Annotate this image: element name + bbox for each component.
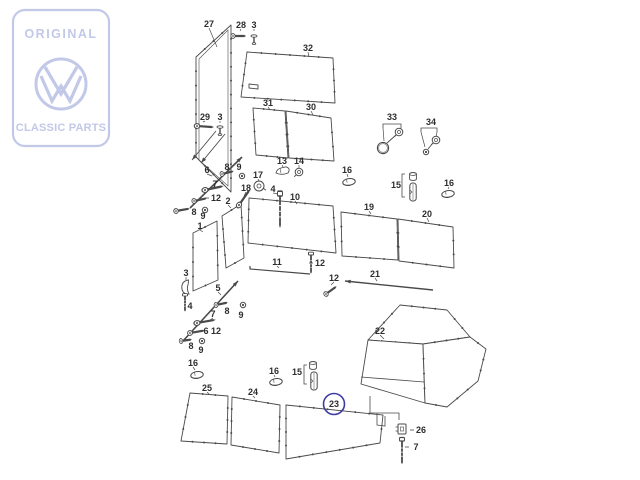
fastener-dot (242, 85, 244, 87)
part-callout-15[interactable]: 15 (292, 367, 302, 377)
fastener-dot (230, 432, 232, 434)
part-callout-13[interactable]: 13 (277, 156, 287, 167)
fastener-dot (230, 108, 232, 110)
fastener-dot (227, 419, 229, 421)
panel-24 (231, 397, 280, 453)
fastener-dot (195, 113, 197, 115)
part-callout-3[interactable]: 3 (251, 20, 256, 31)
part-number-label[interactable]: 16 (188, 358, 198, 368)
fastener-dot (279, 416, 281, 418)
clip-icon (342, 178, 355, 186)
part-callout-9[interactable]: 9 (236, 162, 241, 172)
fastener-dot (439, 265, 441, 267)
part-number-label[interactable]: 12 (211, 193, 221, 203)
clip-icon (190, 371, 203, 379)
fastener-dot (195, 142, 197, 144)
part-number-label[interactable]: 7 (210, 309, 215, 319)
fastener-dot (217, 264, 219, 266)
fastener-dot (266, 450, 268, 452)
fastener-dot (477, 342, 479, 344)
fastener-dot (308, 114, 310, 116)
fastener-dot (480, 369, 482, 371)
fastener-dot (262, 244, 264, 246)
fastener-dot (434, 341, 436, 343)
part-callout-32[interactable]: 32 (303, 43, 313, 57)
part-number-label[interactable]: 24 (248, 387, 258, 397)
part-number-label[interactable]: 15 (292, 367, 302, 377)
fastener-dot (352, 447, 354, 449)
panel-32-slot (249, 84, 258, 89)
part-number-label[interactable]: 4 (270, 184, 275, 194)
fastener-dot (456, 397, 458, 399)
part-number-label[interactable]: 6 (204, 165, 209, 175)
fastener-dot (276, 200, 278, 202)
part-number-label[interactable]: 1 (197, 221, 202, 231)
part-callout-14[interactable]: 14 (294, 156, 304, 168)
fastener-dot (291, 247, 293, 249)
part-number-label[interactable]: 3 (217, 112, 222, 122)
part-number-label[interactable]: 3 (251, 20, 256, 30)
bracket-33 (383, 124, 401, 128)
panel-30 (286, 111, 334, 161)
fastener-dot (457, 338, 459, 340)
fastener-dot (245, 62, 247, 64)
fastener-dot (185, 416, 187, 418)
fastener-dot (230, 66, 232, 68)
fastener-dot (234, 262, 236, 264)
fastener-dot (254, 448, 256, 450)
fastener-dot (287, 145, 289, 147)
fastener-dot (242, 446, 244, 448)
bracket-33-left-leader (383, 128, 384, 141)
part-number-label[interactable]: 19 (364, 202, 374, 212)
part-number-label[interactable]: 12 (315, 258, 325, 268)
vw-classic-parts-logo: ORIGINAL CLASSIC PARTS (13, 10, 109, 146)
hook-icon (182, 280, 189, 294)
fastener-dot (287, 134, 289, 136)
part-number-label[interactable]: 7 (413, 442, 418, 452)
fastener-dot (217, 250, 219, 252)
part-number-label[interactable]: 27 (204, 19, 214, 29)
part-number-label[interactable]: 26 (416, 425, 426, 435)
fastener-dot (318, 56, 320, 58)
fastener-dot (195, 99, 197, 101)
fastener-dot (260, 52, 262, 54)
fastener-dot (381, 428, 383, 430)
part-number-label[interactable]: 32 (303, 43, 313, 53)
fastener-dot (318, 204, 320, 206)
part-callout-2[interactable]: 2 (225, 196, 231, 208)
part-callout-29[interactable]: 29 (200, 112, 210, 122)
part-number-label[interactable]: 12 (211, 326, 221, 336)
part-number-label[interactable]: 31 (263, 98, 273, 108)
fastener-dot (340, 226, 342, 228)
part-number-label[interactable]: 10 (290, 192, 300, 202)
part-number-label[interactable]: 22 (375, 326, 385, 336)
part-number-label[interactable]: 3 (183, 268, 188, 278)
fastener-dot (230, 177, 232, 179)
fastener-dot (333, 68, 335, 70)
grommet2-icon (394, 128, 403, 137)
fastener-dot (423, 358, 425, 360)
fastener-dot (354, 411, 356, 413)
part-callout-9[interactable]: 9 (198, 345, 203, 355)
part-callout-8[interactable]: 8 (191, 207, 196, 217)
fastener-dot (289, 54, 291, 56)
screw-icon (231, 34, 246, 39)
strip-part-21 (345, 281, 433, 290)
fastener-dot (195, 85, 197, 87)
screw-icon (323, 284, 338, 297)
part-callout-9[interactable]: 9 (200, 211, 205, 221)
rod-part-11 (250, 266, 310, 274)
fastener-dot (230, 149, 232, 151)
part-callout-21[interactable]: 21 (370, 269, 380, 281)
fastener-dot (222, 228, 224, 230)
fastener-dot (398, 246, 400, 248)
fastener-dot (231, 420, 233, 422)
fastener-dot (355, 256, 357, 258)
screw-icon (191, 196, 207, 204)
bracket-15-bottom (304, 365, 307, 384)
fastener-dot (254, 131, 256, 133)
bracket-34-left-leader (421, 132, 425, 147)
part-number-label[interactable]: 4 (187, 301, 192, 311)
fastener-dot (313, 407, 315, 409)
fastener-dot (255, 400, 257, 402)
part-number-label[interactable]: 18 (241, 183, 251, 193)
fastener-dot (423, 307, 425, 309)
fastener-dot (285, 418, 287, 420)
part-number-label[interactable]: 29 (200, 112, 210, 122)
part-number-label[interactable]: 9 (238, 310, 243, 320)
panel-1 (193, 221, 218, 291)
fastener-dot (242, 230, 244, 232)
part-callout-20[interactable]: 20 (422, 209, 432, 222)
fastener-dot (230, 163, 232, 165)
fastener-dot (266, 155, 268, 157)
part-number-label[interactable]: 9 (236, 162, 241, 172)
part-callout-30[interactable]: 30 (306, 102, 316, 115)
capnut-icon (410, 173, 417, 181)
part-callout-6[interactable]: 6 (203, 326, 208, 336)
panel-25 (181, 393, 228, 444)
fastener-dot (424, 387, 426, 389)
fastener-dot (202, 393, 204, 395)
part-callout-25[interactable]: 25 (202, 383, 212, 394)
fastener-dot (368, 215, 370, 217)
ring-icon (377, 142, 388, 153)
fastener-dot (223, 241, 225, 243)
part-callout-17[interactable]: 17 (253, 170, 263, 181)
grommet2-icon (294, 168, 303, 177)
fastener-dot (192, 261, 194, 263)
part-callout-8[interactable]: 8 (224, 162, 229, 172)
fastener-dot (339, 449, 341, 451)
panel-20 (398, 219, 454, 268)
part-callout-3[interactable]: 3 (217, 112, 222, 123)
panel-10 (248, 198, 336, 253)
fastener-dot (334, 91, 336, 93)
part-callout-5[interactable]: 5 (215, 283, 221, 295)
fastener-dot (341, 240, 343, 242)
fastener-dot (215, 442, 217, 444)
bracket-34 (421, 128, 437, 132)
part-number-label[interactable]: 7 (212, 179, 217, 189)
clip-icon (269, 378, 282, 386)
exploded-parts-diagram: ORIGINAL CLASSIC PARTS 27283323130333429… (0, 0, 640, 480)
part-number-label[interactable]: 2 (225, 196, 230, 206)
fastener-dot (230, 94, 232, 96)
fastener-dot (296, 112, 298, 114)
part-callout-24[interactable]: 24 (248, 387, 258, 398)
fastener-dot (382, 216, 384, 218)
fastener-dot (320, 250, 322, 252)
fastener-dot (263, 108, 265, 110)
fastener-dot (226, 431, 228, 433)
fastener-dot (322, 159, 324, 161)
fastener-dot (411, 305, 413, 307)
part-number-label[interactable]: 11 (272, 257, 282, 267)
part-callout-3[interactable]: 3 (183, 268, 188, 280)
fastener-dot (203, 442, 205, 444)
nut-icon (199, 338, 204, 343)
part-number-label[interactable]: 13 (277, 156, 287, 166)
fastener-dot (278, 440, 280, 442)
fastener-dot (306, 249, 308, 251)
fastener-dot (411, 220, 413, 222)
fastener-dot (461, 327, 463, 329)
flagclip-icon (276, 167, 289, 175)
part-callout-12[interactable]: 12 (205, 193, 221, 203)
fastener-dot (276, 245, 278, 247)
fastener-dot (354, 213, 356, 215)
fastener-dot (482, 359, 484, 361)
fastener-dot (192, 276, 194, 278)
panel-19 (341, 212, 398, 260)
part-number-label[interactable]: 30 (306, 102, 316, 112)
part-callout-8[interactable]: 8 (224, 306, 229, 316)
logo-top-text: ORIGINAL (24, 27, 97, 41)
fastener-dot (383, 258, 385, 260)
fastener-dot (366, 444, 368, 446)
part-callout-4[interactable]: 4 (187, 301, 192, 311)
part-callout-9[interactable]: 9 (238, 310, 243, 320)
fastener-dot (397, 232, 399, 234)
part-callout-7[interactable]: 7 (405, 442, 419, 452)
fastener-dot (275, 53, 277, 55)
part-callout-26[interactable]: 26 (410, 425, 426, 435)
grommet-icon (254, 181, 266, 191)
part-number-label[interactable]: 25 (202, 383, 212, 393)
screwv-icon (400, 437, 405, 464)
fastener-dot (230, 52, 232, 54)
part-number-label[interactable]: 9 (198, 345, 203, 355)
part-callout-19[interactable]: 19 (364, 202, 374, 214)
longclip-icon (311, 372, 317, 390)
fastener-dot (446, 340, 448, 342)
nut-icon (240, 302, 245, 307)
part-callout-15[interactable]: 15 (391, 180, 401, 190)
fastener-dot (383, 322, 385, 324)
fastener-dot (334, 229, 336, 231)
part-callout-4[interactable]: 4 (270, 184, 278, 194)
fastener-dot (230, 121, 232, 123)
bracket-15-right (402, 174, 405, 197)
part-number-label[interactable]: 6 (203, 326, 208, 336)
fastener-dot (242, 244, 244, 246)
fastener-dot (333, 80, 335, 82)
fastener-dot (267, 402, 269, 404)
part-number-label[interactable]: 8 (191, 207, 196, 217)
part-callout-27[interactable]: 27 (204, 19, 217, 47)
part-number-label[interactable]: 8 (224, 162, 229, 172)
fastener-dot (248, 220, 250, 222)
fastener-dot (227, 407, 229, 409)
part-number-label[interactable]: 34 (426, 117, 436, 127)
pin-icon (251, 35, 257, 45)
fastener-dot (231, 209, 233, 211)
part-number-label[interactable]: 17 (253, 170, 263, 180)
part-callout-8[interactable]: 8 (188, 341, 193, 351)
part-callout-7[interactable]: 7 (212, 179, 217, 189)
fastener-dot (312, 453, 314, 455)
squarenut-icon (396, 424, 407, 434)
grommet2-icon (431, 136, 440, 145)
fastener-dot (435, 404, 437, 406)
fastener-dot (299, 405, 301, 407)
fastener-dot (423, 373, 425, 375)
part-callout-16[interactable]: 16 (342, 165, 352, 177)
fastener-dot (253, 119, 255, 121)
part-number-label[interactable]: 20 (422, 209, 432, 219)
fastener-dot (253, 97, 255, 99)
part-callout-1[interactable]: 1 (197, 221, 203, 232)
fastener-dot (333, 217, 335, 219)
fastener-dot (262, 198, 264, 200)
part-number-label[interactable]: 33 (387, 112, 397, 122)
parts-diagram-page: ORIGINAL CLASSIC PARTS 27283323130333429… (0, 0, 640, 480)
fastener-dot (285, 431, 287, 433)
screw-icon (173, 206, 190, 214)
fastener-dot (425, 222, 427, 224)
fastener-dot (438, 224, 440, 226)
fastener-dot (192, 247, 194, 249)
wheelarch-22-right (423, 337, 486, 407)
part-number-label[interactable]: 12 (329, 273, 339, 283)
fastener-dot (331, 131, 333, 133)
fastener-dot (426, 264, 428, 266)
fastener-dot (311, 159, 313, 161)
nut-icon (423, 149, 428, 154)
part-callout-34[interactable]: 34 (426, 117, 436, 127)
capnut-icon (310, 362, 317, 370)
fastener-dot (243, 74, 245, 76)
part-callout-16[interactable]: 16 (269, 366, 279, 377)
fastener-dot (453, 253, 455, 255)
fastener-dot (285, 445, 287, 447)
part-number-label[interactable]: 9 (200, 211, 205, 221)
fastener-dot (230, 135, 232, 137)
fastener-dot (204, 48, 206, 50)
fastener-dot (434, 308, 436, 310)
part-number-label[interactable]: 16 (269, 366, 279, 376)
part-callout-31[interactable]: 31 (263, 98, 273, 110)
part-callout-7[interactable]: 7 (210, 309, 216, 320)
fastener-dot (230, 80, 232, 82)
fastener-dot (321, 101, 323, 103)
fastener-dot (204, 226, 206, 228)
fastener-dot (294, 99, 296, 101)
panel-31 (253, 108, 288, 158)
fastener-dot (221, 32, 223, 34)
fastener-dot (280, 99, 282, 101)
fastener-dot (452, 240, 454, 242)
fastener-dot (334, 240, 336, 242)
fastener-dot (195, 70, 197, 72)
logo-bottom-text: CLASSIC PARTS (16, 122, 106, 134)
fastener-dot (279, 428, 281, 430)
part-number-label[interactable]: 14 (294, 156, 304, 166)
fastener-dot (319, 115, 321, 117)
fastener-dot (303, 55, 305, 57)
fastener-dot (192, 441, 194, 443)
fastener-dot (454, 318, 456, 320)
fastener-dot (298, 456, 300, 458)
fastener-dot (182, 428, 184, 430)
fastener-dot (286, 122, 288, 124)
fastener-dot (247, 231, 249, 233)
fastener-dot (241, 217, 243, 219)
clip-icon (441, 190, 454, 198)
panel-32 (241, 52, 335, 103)
part-callout-16[interactable]: 16 (444, 178, 454, 189)
fastener-dot (273, 109, 275, 111)
fastener-dot (224, 254, 226, 256)
fastener-dot (243, 398, 245, 400)
fastener-dot (304, 202, 306, 204)
fastener-dot (213, 174, 215, 176)
fastener-dot (214, 394, 216, 396)
part-number-label[interactable]: 15 (391, 180, 401, 190)
part-number-label[interactable]: 8 (188, 341, 193, 351)
fastener-dot (221, 182, 223, 184)
fastener-dot (254, 142, 256, 144)
part-callout-33[interactable]: 33 (387, 112, 397, 122)
part-callout-28[interactable]: 28 (236, 20, 246, 31)
part-callout-12[interactable]: 12 (211, 326, 221, 336)
part-number-label[interactable]: 5 (215, 283, 220, 293)
fastener-dot (467, 389, 469, 391)
fastener-dot (325, 451, 327, 453)
fastener-dot (248, 208, 250, 210)
part-number-label[interactable]: 16 (444, 178, 454, 188)
part-callout-12[interactable]: 12 (329, 273, 339, 285)
wheelarch-22-front (361, 340, 425, 403)
part-number-label[interactable]: 16 (342, 165, 352, 175)
part-number-label[interactable]: 8 (224, 306, 229, 316)
part-number-label[interactable]: 21 (370, 269, 380, 279)
part-number-label[interactable]: 23 (329, 399, 339, 409)
fastener-dot (332, 146, 334, 148)
fastener-dot (187, 404, 189, 406)
screw-icon (187, 328, 205, 336)
part-callout-11[interactable]: 11 (272, 257, 282, 268)
panel-2 (222, 204, 244, 268)
part-callout-16[interactable]: 16 (188, 358, 198, 370)
part-number-label[interactable]: 28 (236, 20, 246, 30)
nut-icon (239, 173, 244, 178)
